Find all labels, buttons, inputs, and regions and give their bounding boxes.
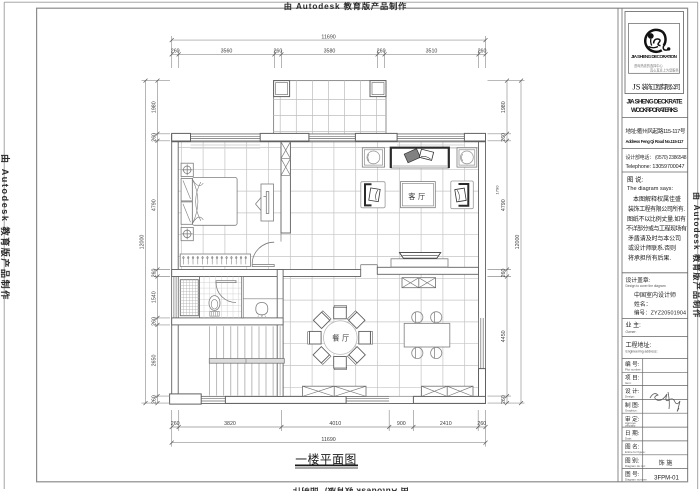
svg-text:将承担所有后果.: 将承担所有后果.	[628, 254, 671, 262]
svg-text:餐厅: 餐厅	[332, 333, 351, 342]
svg-text:图纸不以比例丈量.如有: 图纸不以比例丈量.如有	[627, 215, 686, 223]
svg-text:客厅: 客厅	[408, 192, 427, 201]
svg-text:2410: 2410	[440, 421, 452, 427]
svg-text:4790: 4790	[501, 199, 507, 211]
svg-text:装饰工程有限公司所有.: 装饰工程有限公司所有.	[628, 205, 685, 213]
svg-text:姓名：: 姓名：	[634, 300, 651, 308]
svg-text:1540: 1540	[152, 291, 158, 303]
svg-text:260: 260	[152, 269, 158, 278]
svg-text:咨询热线的选择中心: 咨询热线的选择中心	[634, 63, 663, 68]
svg-text:设计盖章:: 设计盖章:	[626, 276, 651, 284]
svg-text:Design:: Design:	[625, 395, 635, 399]
svg-text:1980: 1980	[501, 101, 507, 113]
svg-text:1980: 1980	[152, 101, 158, 113]
svg-text:11690: 11690	[321, 34, 335, 40]
svg-text:工程地址:: 工程地址:	[626, 341, 652, 349]
svg-text:JS: JS	[633, 82, 641, 92]
svg-text:Plot number:: Plot number:	[625, 368, 642, 372]
svg-text:4790: 4790	[152, 199, 158, 211]
svg-text:JIA SHENG DECORATION: JIA SHENG DECORATION	[631, 54, 678, 59]
svg-text:由 Autodesk 教育版产品制作: 由 Autodesk 教育版产品制作	[284, 1, 408, 11]
svg-text:260: 260	[171, 421, 180, 427]
svg-text:900: 900	[397, 421, 406, 427]
svg-text:3580: 3580	[324, 49, 336, 55]
svg-text:Engineering address:: Engineering address:	[626, 350, 658, 354]
svg-text:3820: 3820	[224, 421, 236, 427]
svg-text:Telephone: 13059700047: Telephone: 13059700047	[626, 164, 685, 170]
svg-text:饰 施: 饰 施	[659, 459, 673, 467]
svg-text:Date:: Date:	[625, 436, 632, 440]
svg-text:由 Autodesk 教育版产品制作: 由 Autodesk 教育版产品制作	[0, 154, 11, 301]
svg-text:Item:: Item:	[625, 381, 632, 385]
svg-text:Address Feng Qi Road No.115-11: Address Feng Qi Road No.115-117	[626, 139, 685, 144]
svg-text:260: 260	[501, 395, 507, 404]
svg-text:本图解释权属佳盛: 本图解释权属佳盛	[633, 195, 681, 203]
svg-text:260: 260	[501, 133, 507, 142]
svg-text:WOCKRPORATERKS: WOCKRPORATERKS	[631, 107, 678, 114]
svg-text:officially:: officially:	[625, 424, 636, 428]
svg-text:3FPM-01: 3FPM-01	[654, 476, 679, 482]
svg-text:The diagram says:: The diagram says:	[627, 186, 673, 192]
svg-text:11690: 11690	[321, 437, 335, 443]
svg-text:由 Autodesk 教育版产品制作: 由 Autodesk 教育版产品制作	[292, 487, 409, 491]
svg-text:Diagram do not:: Diagram do not:	[625, 464, 646, 468]
svg-text:3560: 3560	[221, 49, 233, 55]
svg-text:Graphics:: Graphics:	[625, 409, 638, 413]
svg-text:260: 260	[273, 49, 282, 55]
svg-text:中国室内设计师: 中国室内设计师	[634, 291, 676, 299]
svg-text:真心真意上为您服务: 真心真意上为您服务	[650, 68, 679, 73]
svg-text:12000: 12000	[140, 235, 146, 250]
svg-text:业 主:: 业 主:	[626, 321, 642, 329]
svg-text:260: 260	[477, 421, 486, 427]
svg-text:由 Autodesk 教育版产品制作: 由 Autodesk 教育版产品制作	[692, 192, 700, 319]
svg-text:4450: 4450	[501, 330, 507, 342]
svg-text:260: 260	[478, 49, 487, 55]
svg-text:设计部电话： (0570) 2386548: 设计部电话： (0570) 2386548	[626, 154, 687, 161]
svg-text:矛盾请及时与本公司: 矛盾请及时与本公司	[628, 234, 681, 242]
svg-text:4010: 4010	[329, 421, 341, 427]
svg-text:装饰工程有限公司: 装饰工程有限公司	[642, 82, 681, 91]
svg-text:Design to cover the diagram:: Design to cover the diagram:	[626, 284, 667, 288]
svg-text:260: 260	[152, 133, 158, 142]
svg-text:3510: 3510	[426, 49, 438, 55]
svg-text:260: 260	[171, 49, 180, 55]
svg-text:260: 260	[152, 317, 158, 326]
svg-text:260: 260	[501, 269, 507, 278]
svg-text:Diagram number:: Diagram number:	[625, 478, 648, 482]
svg-text:260: 260	[377, 49, 386, 55]
svg-text:图 说:: 图 说:	[627, 175, 644, 184]
svg-text:或设计师联系.否则: 或设计师联系.否则	[628, 244, 676, 252]
svg-text:JIA SHENG DECKRATE: JIA SHENG DECKRATE	[627, 99, 683, 106]
svg-text:2650: 2650	[152, 355, 158, 367]
svg-text:260: 260	[152, 395, 158, 404]
svg-text:Entire for figure:: Entire for figure:	[625, 450, 646, 454]
svg-text:1790: 1790	[495, 185, 500, 195]
svg-text:一楼平面图: 一楼平面图	[295, 452, 357, 466]
svg-text:12000: 12000	[515, 235, 521, 250]
svg-text:编号：ZYZ20501904: 编号：ZYZ20501904	[634, 309, 686, 317]
svg-text:Owner:: Owner:	[626, 330, 637, 334]
svg-text:地址:衢州风起路115-117号: 地址:衢州风起路115-117号	[626, 127, 686, 135]
svg-text:不详部分或与工程现场有: 不详部分或与工程现场有	[626, 225, 687, 233]
